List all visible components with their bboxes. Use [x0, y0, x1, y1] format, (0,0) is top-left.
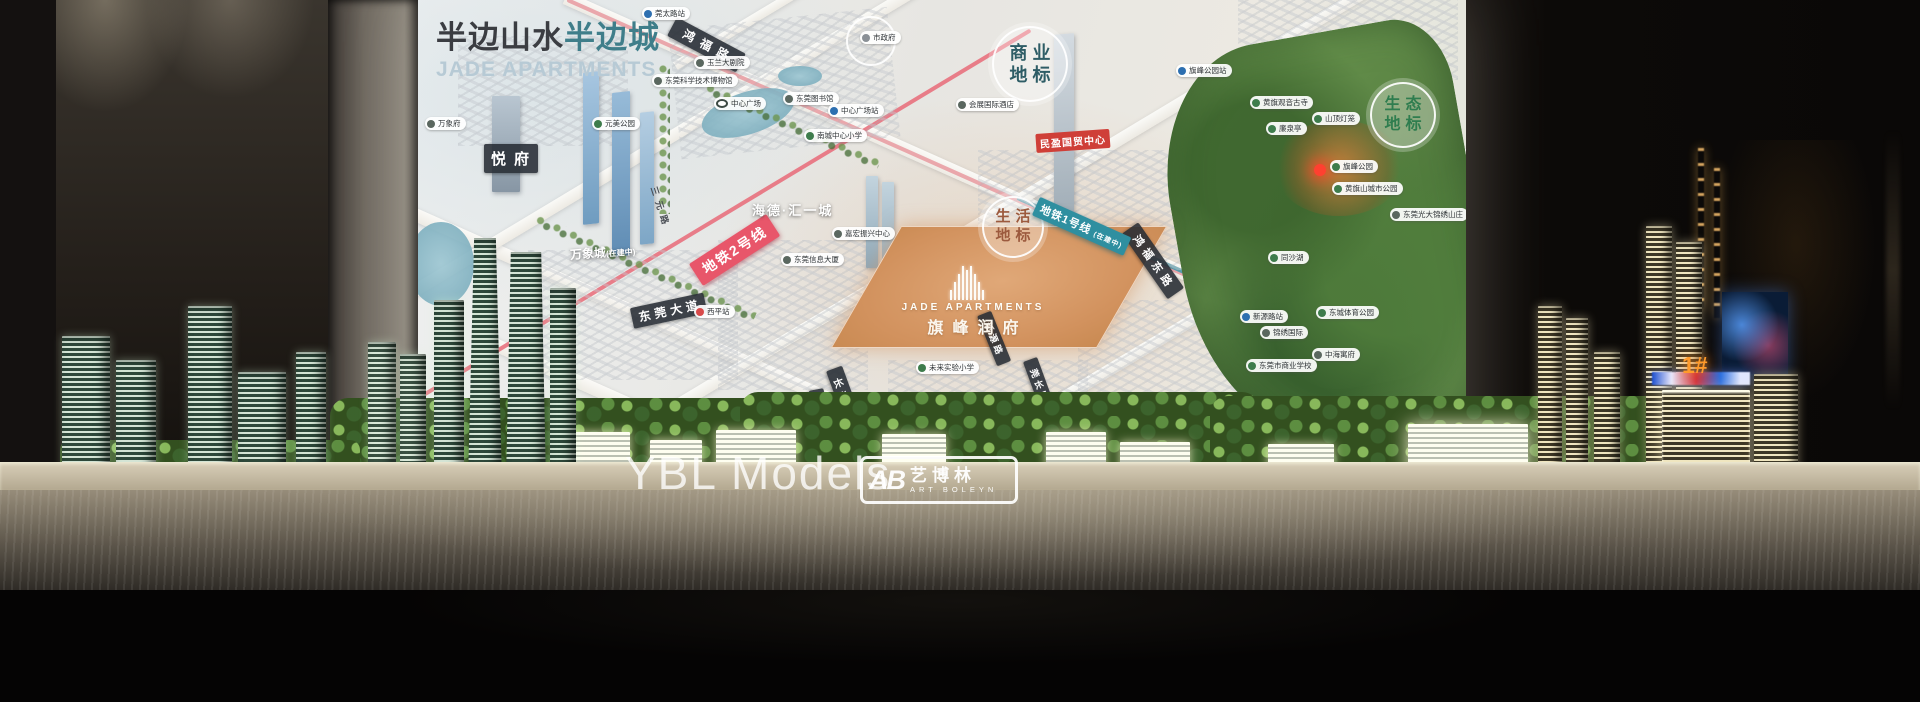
park-badge: 黄旗山城市公园 [1332, 182, 1403, 195]
park-icon [1318, 309, 1326, 317]
badge-label: 元美公园 [605, 118, 635, 129]
commercial-landmark-circle: 商业 地标 [992, 26, 1068, 102]
model-tower [62, 336, 110, 482]
led-screen [1722, 292, 1788, 374]
park-badge: 山顶灯笼 [1312, 112, 1360, 125]
poi-icon [1314, 351, 1322, 359]
park-icon [1252, 99, 1260, 107]
pond [778, 66, 822, 86]
school-icon [918, 364, 926, 372]
park-icon [1268, 125, 1276, 133]
art-boleyn-en: ART BOLEYN [910, 486, 997, 494]
badge-label: 东城体育公园 [1329, 307, 1374, 318]
poi-icon [696, 59, 704, 67]
model-tower [368, 342, 396, 482]
metro-icon [644, 10, 652, 18]
gov-icon [862, 34, 870, 42]
model-tower [1538, 306, 1562, 482]
metro-station-badge: 中心广场站 [828, 104, 884, 117]
title-cn-accent: 半边城 [564, 20, 660, 55]
park-icon [1270, 254, 1278, 262]
art-boleyn-cn: 艺博林 [910, 467, 997, 484]
tower-number-sign: 1# [1682, 352, 1708, 379]
poi-badge: 会展国际酒店 [956, 98, 1019, 111]
gov-badge: 市政府 [860, 31, 901, 44]
haide-label: 海德·汇一城 [752, 200, 833, 219]
poi-icon [1392, 211, 1400, 219]
metro-station-badge: 莞太路站 [642, 7, 690, 20]
poi-badge: 东莞科学技术博物馆 [652, 74, 738, 87]
badge-label: 西平站 [707, 306, 730, 317]
badge-label: 旗峰公园 [1343, 161, 1373, 172]
plaza-icon [716, 99, 728, 108]
poi-icon [427, 120, 435, 128]
park-badge: 东城体育公园 [1316, 306, 1379, 319]
metro-station-badge: 新源路站 [1240, 310, 1288, 323]
wall-right-edge-light [1886, 130, 1900, 410]
map-tower [640, 111, 654, 244]
badge-label: 莞太路站 [655, 8, 685, 19]
art-boleyn-logo: AB 艺博林 ART BOLEYN [860, 456, 1018, 504]
site-logo-en: JADE APARTMENTS [888, 302, 1058, 313]
park-badge: 廉泉亭 [1266, 122, 1307, 135]
badge-label: 东莞信息大厦 [794, 254, 839, 265]
poi-badge: 东莞图书馆 [783, 92, 839, 105]
metro-icon [1242, 313, 1250, 321]
model-table-marble-face [0, 490, 1920, 590]
wanxiangcheng-suffix: (在建中) [606, 247, 636, 258]
poi-icon [958, 101, 966, 109]
jade-apartments-logo-icon [950, 264, 990, 300]
poi-badge: 玉兰大剧院 [694, 56, 750, 69]
poi-icon [1262, 329, 1270, 337]
metro-icon [830, 107, 838, 115]
badge-label: 嘉宏振兴中心 [845, 228, 890, 239]
school-icon [1248, 362, 1256, 370]
badge-label: 山顶灯笼 [1325, 113, 1355, 124]
badge-label: 黄旗山城市公园 [1345, 183, 1398, 194]
model-tower [188, 306, 232, 482]
wanxiangcheng-text: 万象城 [570, 246, 607, 262]
living-landmark-line1: 生活 [990, 208, 1035, 227]
badge-label: 中心广场站 [841, 105, 879, 116]
park-icon [1334, 185, 1342, 193]
badge-label: 东莞光大锦绣山庄 [1403, 209, 1463, 220]
park-badge: 元美公园 [592, 117, 640, 130]
badge-label: 中海寓府 [1325, 349, 1355, 360]
sales-center-showroom-photo: 半边山水半边城 JADE APARTMENTS 商业 地标 生态 地标 生活 地… [0, 0, 1920, 702]
poi-icon [785, 95, 793, 103]
badge-label: 东莞市商业学校 [1259, 360, 1312, 371]
school-badge: 东莞市商业学校 [1246, 359, 1317, 372]
poi-badge: 嘉宏振兴中心 [832, 227, 895, 240]
ab-monogram-icon: AB [869, 465, 904, 496]
badge-label: 会展国际酒店 [969, 99, 1014, 110]
badge-label: 市政府 [873, 32, 896, 43]
school-badge: 未来实验小学 [916, 361, 979, 374]
poi-icon [783, 256, 791, 264]
school-icon [806, 132, 814, 140]
badge-label: 廉泉亭 [1279, 123, 1302, 134]
lantern-glow-icon [1314, 164, 1326, 176]
floor [0, 590, 1920, 702]
watermark-text: YBL Models [625, 446, 891, 500]
map-tower [612, 91, 630, 257]
poi-badge: 万象府 [425, 117, 466, 130]
poi-badge: 中海寓府 [1312, 348, 1360, 361]
badge-label: 新源路站 [1253, 311, 1283, 322]
badge-label: 同沙湖 [1281, 252, 1304, 263]
badge-label: 黄旗观音古寺 [1263, 97, 1308, 108]
badge-label: 万象府 [438, 118, 461, 129]
ecological-landmark-line1: 生态 [1379, 95, 1426, 115]
living-landmark-circle: 生活 地标 [982, 196, 1044, 258]
metro-station-badge: 西平站 [694, 305, 735, 318]
park-icon [1332, 163, 1340, 171]
map-tower [583, 71, 599, 225]
title-cn-dark: 半边山水 [436, 20, 564, 55]
school-badge: 南城中心小学 [804, 129, 867, 142]
poi-badge: 锦绣国际 [1260, 326, 1308, 339]
living-landmark-line2: 地标 [990, 227, 1035, 246]
metro-icon [1178, 67, 1186, 75]
poi-badge: 中心广场 [714, 97, 766, 110]
badge-label: 未来实验小学 [929, 362, 974, 373]
model-tower [550, 288, 576, 482]
board-title-cn: 半边山水半边城 [436, 12, 660, 57]
park-icon [1314, 115, 1322, 123]
badge-label: 中心广场 [731, 98, 761, 109]
commercial-landmark-line1: 商业 [1005, 42, 1056, 65]
poi-icon [834, 230, 842, 238]
metro-station-badge: 旗峰公园站 [1176, 64, 1232, 77]
ecological-landmark-line2: 地标 [1379, 115, 1426, 135]
model-tower [1566, 318, 1588, 482]
park-badge: 黄旗观音古寺 [1250, 96, 1313, 109]
yuefu-banner: 悦府 [484, 144, 538, 173]
park-badge: 同沙湖 [1268, 251, 1309, 264]
badge-label: 锦绣国际 [1273, 327, 1303, 338]
poi-badge: 东莞信息大厦 [781, 253, 844, 266]
site-logo-cn: 旗峰润府 [888, 314, 1058, 338]
ecological-landmark-circle: 生态 地标 [1370, 82, 1436, 148]
model-skyscraper [506, 252, 546, 482]
badge-label: 旗峰公园站 [1189, 65, 1227, 76]
badge-label: 玉兰大剧院 [707, 57, 745, 68]
badge-label: 东莞科学技术博物馆 [665, 75, 733, 86]
model-tower [434, 300, 464, 482]
badge-label: 南城中心小学 [817, 130, 862, 141]
commercial-landmark-line2: 地标 [1005, 64, 1056, 87]
board-title: 半边山水半边城 JADE APARTMENTS [436, 12, 660, 82]
poi-badge: 东莞光大锦绣山庄 [1390, 208, 1466, 221]
map-tower [866, 176, 878, 268]
badge-label: 东莞图书馆 [796, 93, 834, 104]
poi-icon [654, 77, 662, 85]
park-icon [594, 120, 602, 128]
park-badge: 旗峰公园 [1330, 160, 1378, 173]
metro-icon [696, 308, 704, 316]
board-title-en: JADE APARTMENTS [436, 58, 660, 82]
